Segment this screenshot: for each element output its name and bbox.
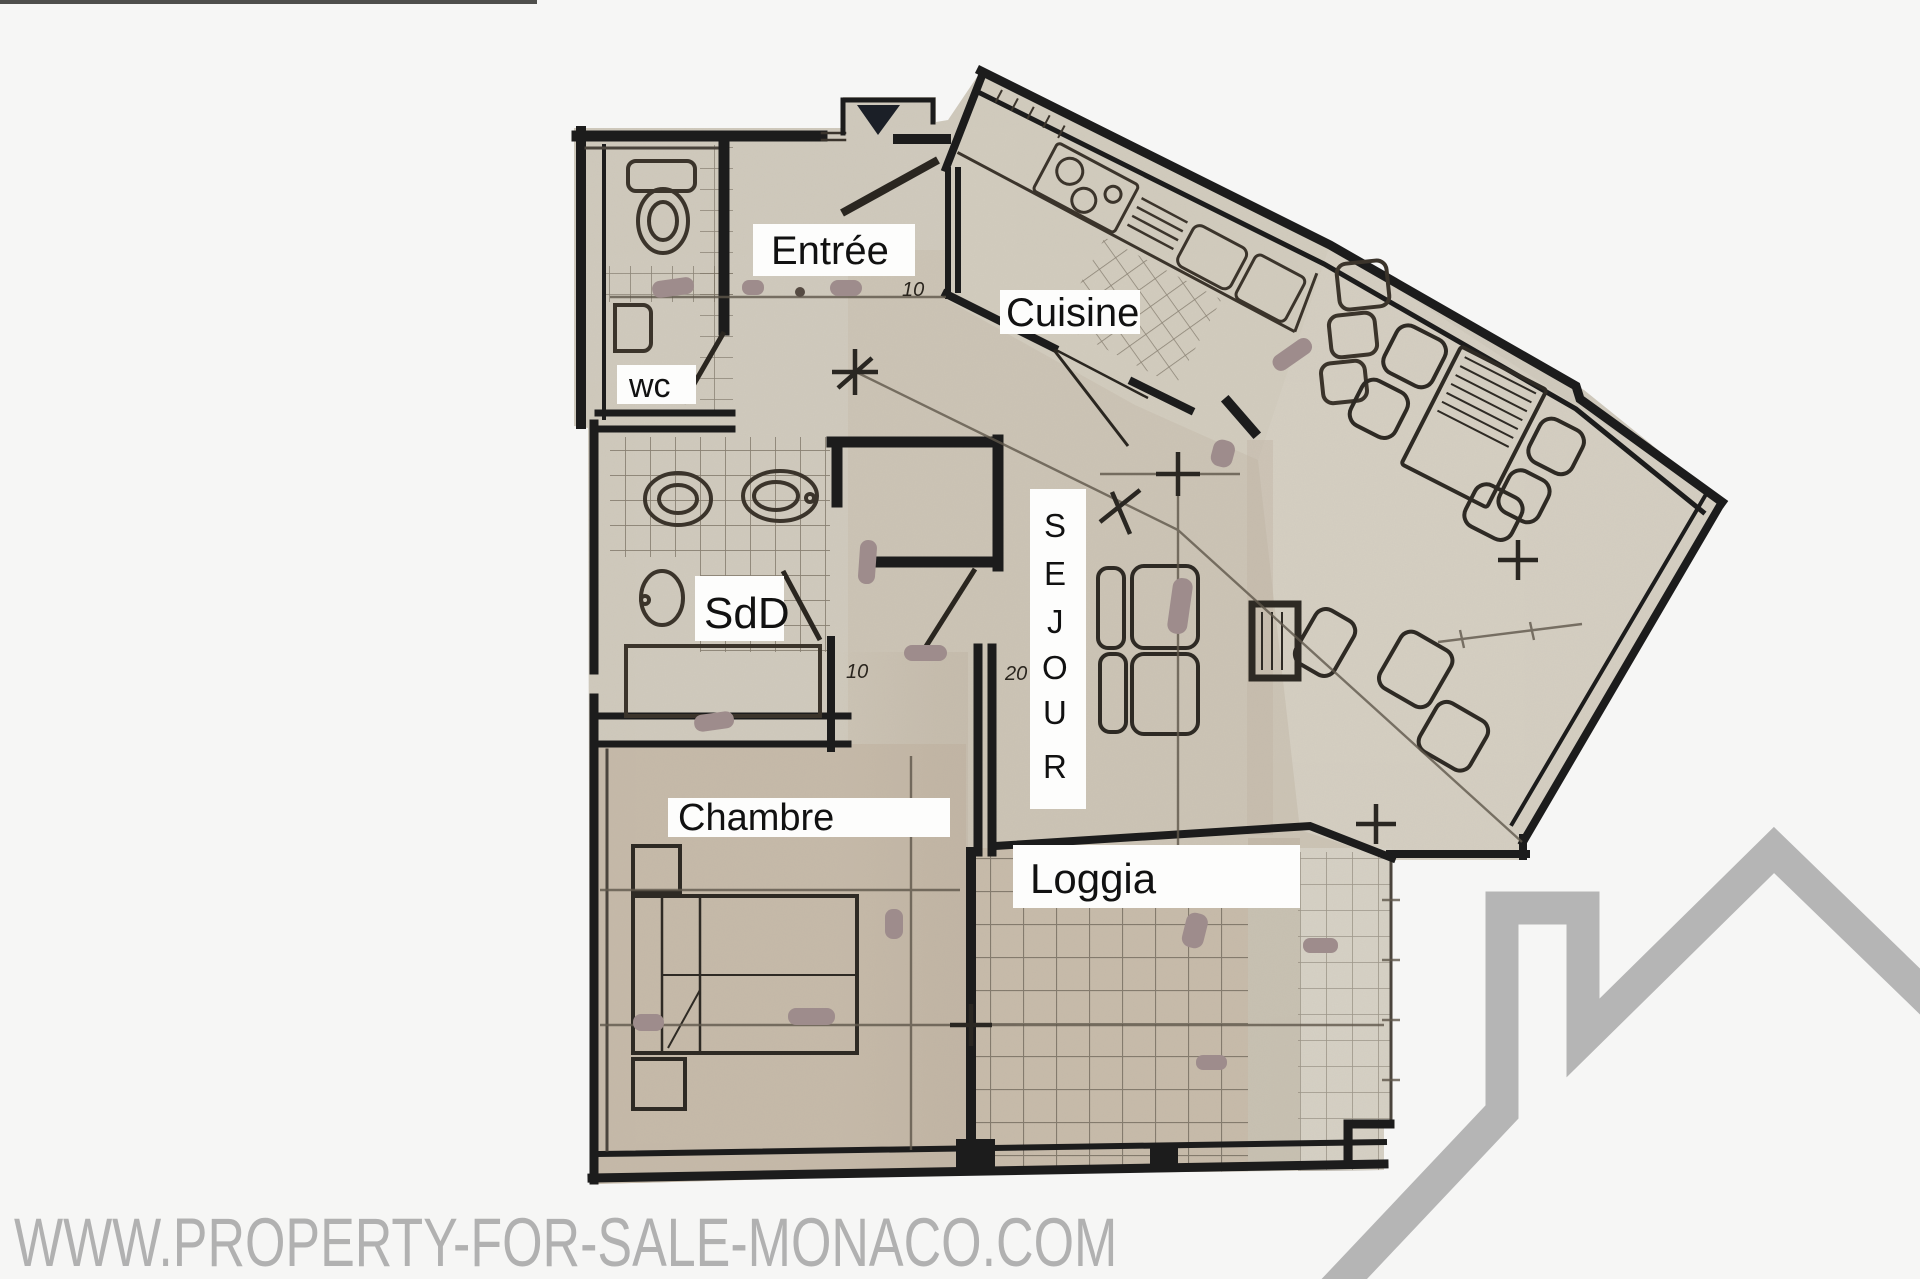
- svg-text:wc: wc: [628, 367, 671, 405]
- svg-text:10: 10: [846, 661, 868, 683]
- svg-text:Entrée: Entrée: [771, 229, 889, 273]
- svg-text:20: 20: [1004, 663, 1027, 685]
- svg-text:S: S: [1044, 507, 1066, 544]
- svg-text:WWW.PROPERTY-FOR-SALE-MONACO.C: WWW.PROPERTY-FOR-SALE-MONACO.COM: [14, 1204, 1117, 1279]
- svg-text:O: O: [1042, 649, 1068, 686]
- svg-text:R: R: [1043, 748, 1067, 785]
- svg-text:Chambre: Chambre: [678, 797, 834, 839]
- svg-text:10: 10: [902, 279, 924, 301]
- svg-text:U: U: [1043, 694, 1067, 731]
- svg-text:SdD: SdD: [704, 589, 790, 638]
- svg-text:Loggia: Loggia: [1030, 855, 1157, 902]
- svg-text:J: J: [1047, 603, 1064, 640]
- svg-text:Cuisine: Cuisine: [1006, 291, 1139, 335]
- svg-text:E: E: [1044, 555, 1066, 592]
